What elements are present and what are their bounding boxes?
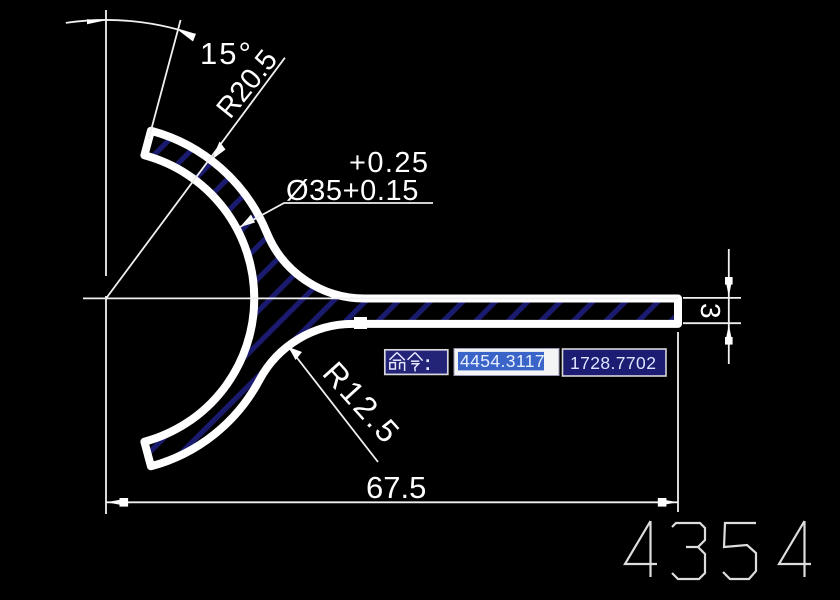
svg-text:1728.7702: 1728.7702: [570, 353, 656, 373]
svg-text:4454.3117: 4454.3117: [460, 351, 545, 371]
svg-text:Ø35+0.15: Ø35+0.15: [286, 175, 419, 207]
svg-text:3: 3: [695, 303, 726, 319]
svg-text:67.5: 67.5: [366, 470, 426, 505]
